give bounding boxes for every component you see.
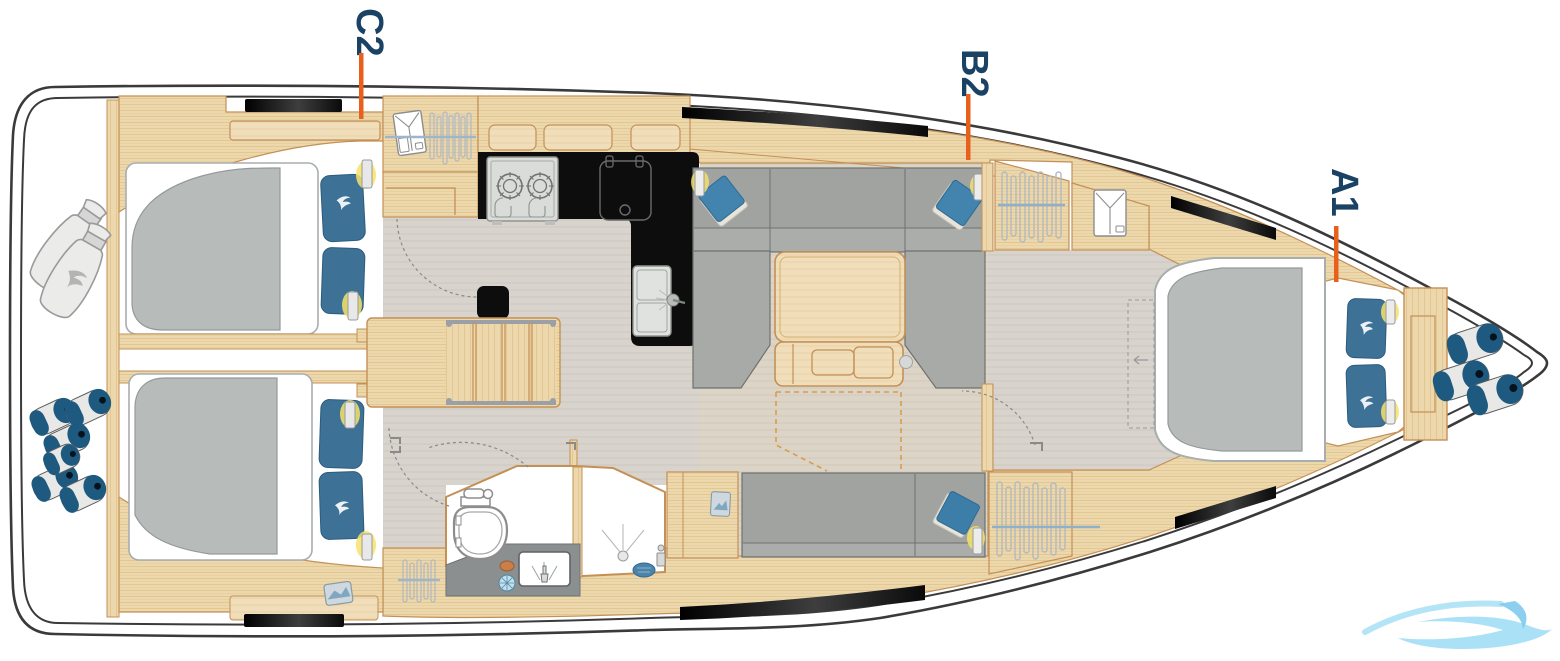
svg-text:A1: A1 — [1323, 168, 1365, 217]
svg-text:B2: B2 — [953, 49, 995, 98]
svg-text:C2: C2 — [348, 8, 390, 57]
